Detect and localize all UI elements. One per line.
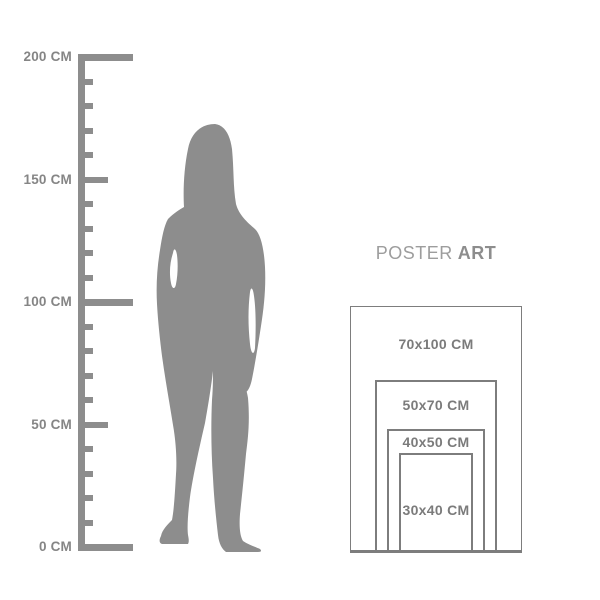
ruler-tick-40cm [78,446,93,452]
ruler-label-100cm: 100 CM [10,293,72,311]
woman-body-shape [157,124,266,552]
title-word-poster: POSTER [376,243,453,263]
ruler-label-200cm: 200 CM [10,48,72,66]
ruler-label-150cm: 150 CM [10,171,72,189]
title-word-art: ART [458,243,497,263]
ruler-tick-180cm [78,103,93,109]
woman-silhouette [148,120,282,556]
ruler-tick-110cm [78,275,93,281]
ruler-tick-70cm [78,373,93,379]
ruler-tick-0cm [78,544,133,551]
ruler-tick-90cm [78,324,93,330]
ruler-tick-200cm [78,54,133,61]
ruler-tick-140cm [78,201,93,207]
ruler-tick-10cm [78,520,93,526]
ruler-tick-130cm [78,226,93,232]
ruler-tick-190cm [78,79,93,85]
ruler-label-0cm: 0 CM [10,538,72,556]
poster-guide-title: POSTERART [336,243,536,263]
ruler-tick-150cm [78,177,108,183]
ruler-tick-80cm [78,348,93,354]
ruler-tick-170cm [78,128,93,134]
ruler-tick-160cm [78,152,93,158]
poster-size-label-70x100: 70x100 CM [366,335,506,353]
poster-size-label-40x50: 40x50 CM [366,433,506,451]
ruler-tick-30cm [78,471,93,477]
ruler-tick-120cm [78,250,93,256]
poster-size-label-50x70: 50x70 CM [366,396,506,414]
poster-size-guide-infographic: 200 CM150 CM100 CM50 CM0 CM POSTERART 70… [0,0,600,600]
ruler-tick-20cm [78,495,93,501]
ruler-label-50cm: 50 CM [10,416,72,434]
poster-baseline [350,550,522,553]
poster-size-label-30x40: 30x40 CM [366,501,506,519]
ruler-tick-60cm [78,397,93,403]
ruler-tick-50cm [78,422,108,428]
ruler-tick-100cm [78,299,133,306]
